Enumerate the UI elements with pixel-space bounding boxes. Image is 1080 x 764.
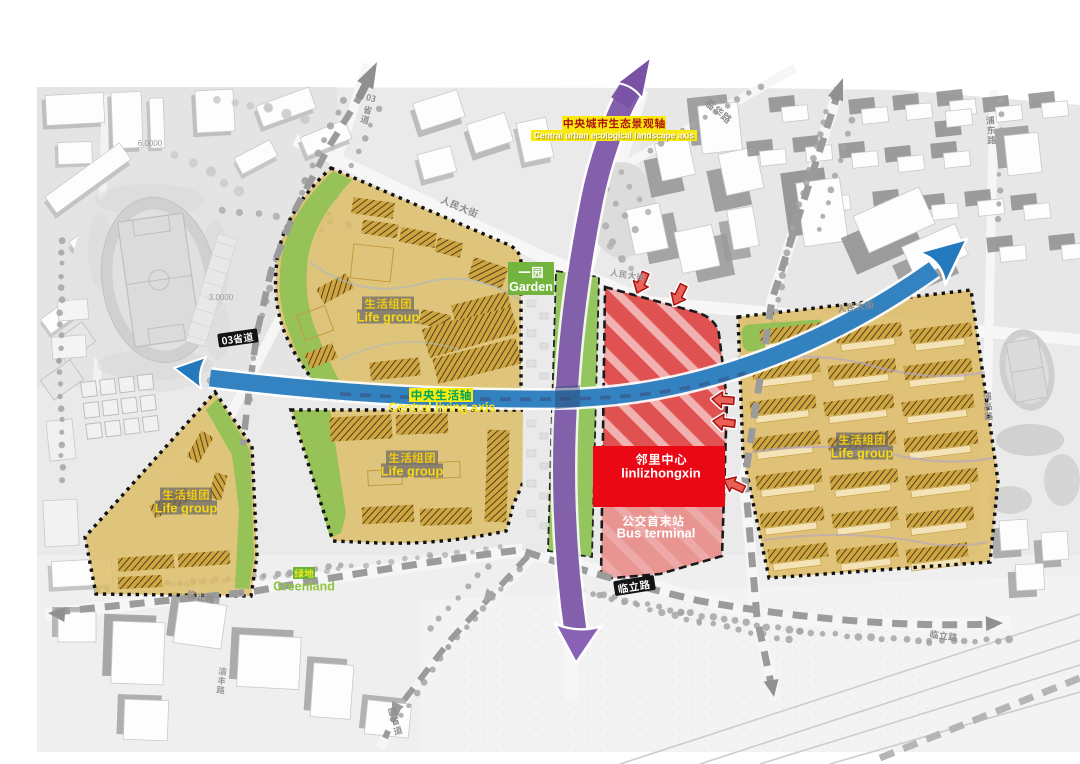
svg-text:6.0000: 6.0000 bbox=[138, 139, 163, 148]
svg-text:Life group: Life group bbox=[357, 310, 420, 325]
svg-text:Life group: Life group bbox=[381, 464, 444, 479]
svg-text:Bus terminal: Bus terminal bbox=[617, 526, 696, 541]
svg-text:Life group: Life group bbox=[831, 446, 894, 461]
svg-text:Central living axis: Central living axis bbox=[389, 401, 496, 415]
svg-text:Garden: Garden bbox=[509, 280, 553, 294]
svg-text:3.0000: 3.0000 bbox=[209, 293, 234, 302]
svg-text:linlizhongxin: linlizhongxin bbox=[621, 466, 700, 481]
svg-text:Greenland: Greenland bbox=[273, 580, 335, 594]
svg-text:Life group: Life group bbox=[155, 501, 218, 516]
svg-text:Central urban ecological lands: Central urban ecological landscape axis bbox=[534, 131, 694, 142]
